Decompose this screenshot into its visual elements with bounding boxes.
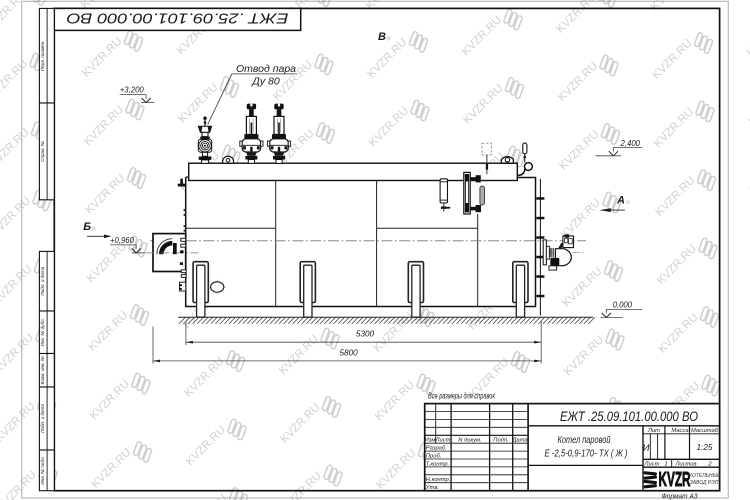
svg-text:Подп. и дата: Подп. и дата <box>40 404 45 433</box>
svg-text:Лист: Лист <box>435 438 451 444</box>
svg-text:Подп. и дата: Подп. и дата <box>40 266 45 295</box>
svg-text:1: 1 <box>664 462 667 468</box>
svg-text:Перв. примен.: Перв. примен. <box>40 40 45 71</box>
svg-text:Е -2,5-0,9-170- ТХ ( Ж ): Е -2,5-0,9-170- ТХ ( Ж ) <box>545 449 628 460</box>
svg-text:5300: 5300 <box>356 330 375 339</box>
svg-text:Котел паровой: Котел паровой <box>558 434 611 446</box>
svg-text:5800: 5800 <box>339 348 358 357</box>
svg-text:+3,200: +3,200 <box>120 86 145 95</box>
svg-text:Б: Б <box>83 221 91 233</box>
svg-text:Дата: Дата <box>511 438 528 444</box>
svg-text:Т.контр.: Т.контр. <box>426 461 449 467</box>
svg-text:2,400: 2,400 <box>620 139 641 148</box>
svg-text:1:25: 1:25 <box>697 443 713 452</box>
svg-text:Листов: Листов <box>674 462 696 468</box>
svg-text:+0,960: +0,960 <box>110 236 135 245</box>
svg-text:0,000: 0,000 <box>613 301 633 310</box>
svg-text:Справ. №: Справ. № <box>40 141 45 162</box>
svg-text:Лит: Лит <box>647 428 660 434</box>
svg-text:Взам. инв. №: Взам. инв. № <box>40 356 45 384</box>
svg-text:Масштаб: Масштаб <box>691 428 719 434</box>
svg-text:И: И <box>643 443 650 454</box>
svg-text:В: В <box>378 31 386 43</box>
svg-text:ЕЖТ .25.09.101.00.000 ВО: ЕЖТ .25.09.101.00.000 ВО <box>66 10 288 27</box>
svg-text:Разраб.: Разраб. <box>426 446 447 452</box>
svg-text:Отвод пара: Отвод пара <box>236 63 296 75</box>
svg-text:Подп.: Подп. <box>493 438 508 444</box>
svg-text:Н.контр.: Н.контр. <box>426 477 451 483</box>
svg-text:Проб.: Проб. <box>426 454 442 460</box>
svg-text:N докум.: N докум. <box>458 438 481 444</box>
svg-text:А: А <box>616 195 625 207</box>
svg-text:КОТЕЛЬНЫЙ: КОТЕЛЬНЫЙ <box>689 471 721 479</box>
svg-text:ЗАВОД РЭП: ЗАВОД РЭП <box>690 480 719 486</box>
svg-text:Инв. № подл.: Инв. № подл. <box>40 456 45 485</box>
svg-text:Формат А3: Формат А3 <box>662 491 699 500</box>
svg-text:Утв.: Утв. <box>425 485 439 491</box>
svg-text:Инв. № дубл.: Инв. № дубл. <box>40 318 45 346</box>
svg-text:KVZR: KVZR <box>659 468 691 491</box>
svg-text:Все размеры для справок: Все размеры для справок <box>428 392 495 401</box>
svg-text:Ду 80: Ду 80 <box>251 75 280 87</box>
svg-text:ЕЖТ .25.09.101.00.000 ВО: ЕЖТ .25.09.101.00.000 ВО <box>560 409 698 424</box>
svg-text:Масса: Масса <box>671 428 689 434</box>
svg-text:Изм: Изм <box>425 438 436 444</box>
svg-text:Лист: Лист <box>644 462 660 468</box>
